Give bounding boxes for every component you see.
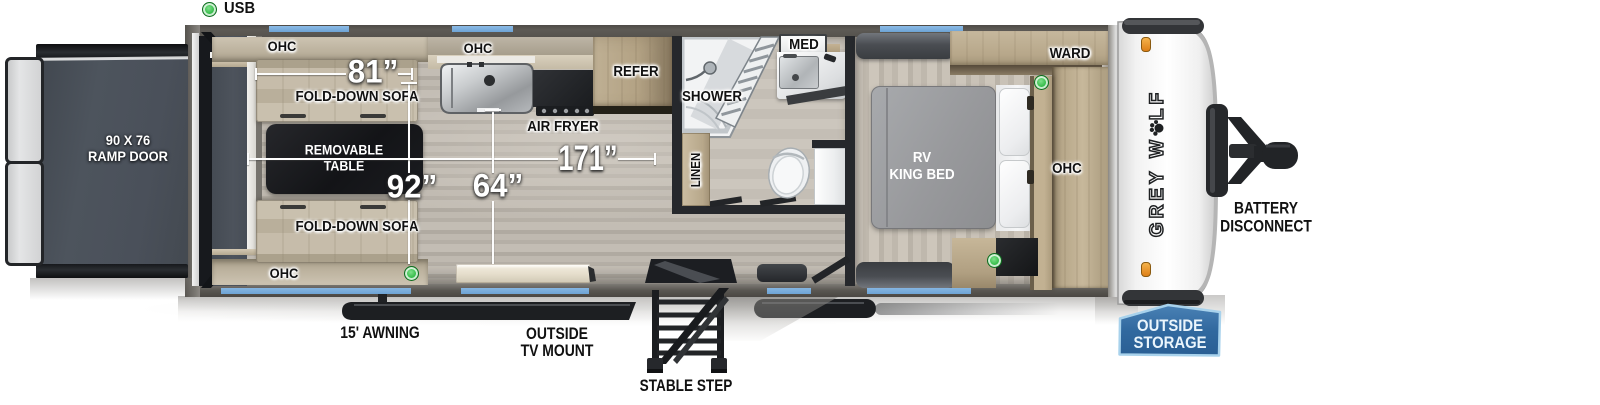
svg-text:OUTSIDE: OUTSIDE	[1137, 317, 1203, 335]
svg-text:STORAGE: STORAGE	[1133, 334, 1206, 352]
